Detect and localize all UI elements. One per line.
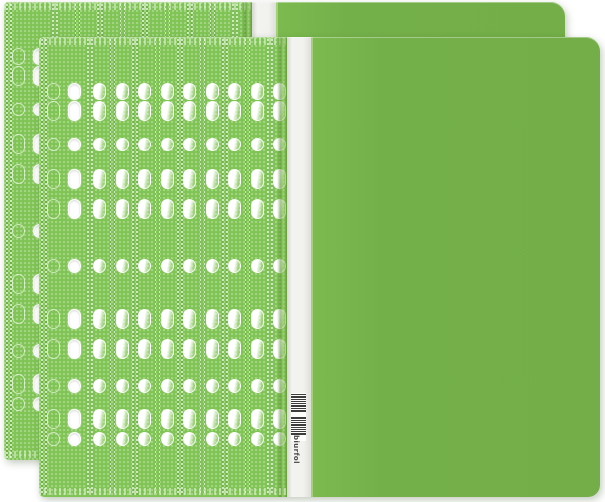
punch-hole-outline (12, 224, 25, 238)
binder-hole (68, 309, 81, 329)
barcode-bar (291, 424, 306, 426)
punch-hole (183, 259, 196, 273)
punch-hole (93, 169, 106, 189)
brand-logo: biurfol (292, 435, 299, 459)
punch-hole (228, 101, 241, 121)
barcode-bar (291, 417, 306, 419)
punch-hole-outline (47, 138, 60, 151)
punch-hole-outline (12, 164, 25, 184)
punch-hole (138, 339, 151, 359)
punch-hole (206, 259, 219, 273)
binder-hole (68, 83, 81, 100)
punch-hole-outline (47, 259, 60, 273)
binder-edge-column (39, 37, 85, 497)
punch-hole (183, 339, 196, 359)
binder-hole (68, 409, 81, 429)
punch-hole (93, 259, 106, 273)
punch-hole (251, 101, 264, 121)
punch-hole (183, 432, 196, 446)
punched-filing-strip (39, 37, 287, 497)
punch-column (153, 37, 176, 497)
barcode-bar (291, 427, 306, 428)
barcode-bar (291, 422, 306, 423)
punch-hole (93, 101, 106, 121)
punch-hole (161, 379, 174, 393)
punch-hole (206, 379, 219, 393)
punch-hole (116, 309, 129, 329)
punch-hole-outline (12, 134, 25, 154)
punch-hole-outline (12, 48, 25, 65)
binder-hole (68, 169, 81, 189)
punch-hole (93, 409, 106, 429)
binder-hole (68, 101, 81, 121)
punch-hole (183, 379, 196, 393)
punch-column (243, 37, 266, 497)
punch-hole (206, 138, 219, 151)
punch-hole (93, 138, 106, 151)
punch-hole (116, 432, 129, 446)
barcode-bar (291, 394, 306, 395)
punch-hole (251, 169, 264, 189)
punch-hole-outline (47, 309, 60, 329)
punch-hole (138, 309, 151, 329)
punch-hole-outline (47, 83, 60, 100)
punch-hole-outline (47, 432, 60, 446)
punch-hole-outline (47, 409, 60, 429)
front-cover (311, 37, 600, 497)
punch-hole (251, 432, 264, 446)
punch-hole (93, 432, 106, 446)
punch-hole (251, 199, 264, 219)
punch-hole (251, 309, 264, 329)
punch-column (85, 37, 108, 497)
barcode-bar (291, 403, 306, 404)
punch-hole-outline (12, 397, 25, 411)
punch-hole (161, 199, 174, 219)
binder-hole (68, 432, 81, 446)
punch-hole (161, 101, 174, 121)
punch-hole (138, 199, 151, 219)
barcode-bar (291, 399, 306, 400)
binder-hole (68, 199, 81, 219)
punch-hole (228, 138, 241, 151)
punch-hole-outline (47, 169, 60, 189)
punch-hole (206, 432, 219, 446)
barcode-bar (291, 420, 306, 421)
punch-hole (138, 259, 151, 273)
punch-hole (161, 409, 174, 429)
binder-hole (68, 138, 81, 151)
punch-hole-outline (12, 344, 25, 358)
punch-hole (138, 409, 151, 429)
punch-hole (206, 309, 219, 329)
barcode-group (291, 394, 306, 412)
punch-hole (93, 199, 106, 219)
punch-hole (251, 83, 264, 100)
punch-hole (228, 432, 241, 446)
barcode-bar (291, 429, 306, 430)
punch-hole-outline (12, 374, 25, 394)
binder-hole (68, 259, 81, 273)
barcode-bar (291, 405, 306, 407)
punch-hole (161, 309, 174, 329)
punch-hole (251, 409, 264, 429)
punch-hole (116, 138, 129, 151)
punch-hole (228, 379, 241, 393)
punch-hole-outline (12, 304, 25, 324)
punch-hole (93, 83, 106, 100)
spine-fold-shadow (277, 37, 287, 497)
punch-hole (161, 83, 174, 100)
punch-hole (251, 339, 264, 359)
punch-hole (183, 199, 196, 219)
punch-column (108, 37, 131, 497)
punch-hole (228, 309, 241, 329)
punch-hole (138, 169, 151, 189)
punch-hole (228, 83, 241, 100)
punch-hole (116, 379, 129, 393)
punch-column (198, 37, 221, 497)
punch-hole (161, 259, 174, 273)
punch-hole (228, 259, 241, 273)
binder-hole (68, 379, 81, 393)
punch-hole (206, 83, 219, 100)
punch-hole (251, 138, 264, 151)
punch-hole (228, 199, 241, 219)
punch-hole (116, 83, 129, 100)
punch-hole (161, 138, 174, 151)
punch-hole (228, 169, 241, 189)
barcode-group (291, 417, 306, 435)
punch-hole-outline (47, 101, 60, 121)
binder-hole (68, 339, 81, 359)
punch-hole (116, 259, 129, 273)
barcode-bar (291, 410, 306, 412)
punch-hole-outline (47, 339, 60, 359)
punch-hole (138, 379, 151, 393)
punch-hole-outline (12, 66, 25, 86)
punch-hole (116, 169, 129, 189)
barcode-bar (291, 431, 306, 432)
front-folder: biurfol (39, 37, 600, 497)
punch-hole (116, 339, 129, 359)
punch-hole (116, 101, 129, 121)
barcode-bar (291, 401, 306, 402)
punch-hole (183, 409, 196, 429)
punch-hole (93, 379, 106, 393)
punch-hole (116, 199, 129, 219)
punch-hole (138, 432, 151, 446)
punch-hole (206, 101, 219, 121)
punch-column (220, 37, 243, 497)
barcode-bar (291, 408, 306, 409)
punch-hole (183, 169, 196, 189)
punch-hole (138, 101, 151, 121)
punch-hole (183, 309, 196, 329)
punch-hole (161, 169, 174, 189)
punch-hole (251, 259, 264, 273)
spine-strip: biurfol (287, 37, 311, 497)
scene: biurfol (0, 0, 605, 502)
punch-hole (206, 339, 219, 359)
punch-column (175, 37, 198, 497)
punch-hole (93, 309, 106, 329)
punch-column (130, 37, 153, 497)
punch-hole (161, 432, 174, 446)
punch-hole (161, 339, 174, 359)
punch-hole (138, 138, 151, 151)
punch-hole-outline (12, 274, 25, 294)
punch-hole-outline (12, 103, 25, 116)
punch-hole (183, 138, 196, 151)
barcode-bar (291, 396, 306, 398)
punch-hole (138, 83, 151, 100)
punch-hole (206, 169, 219, 189)
punch-hole (93, 339, 106, 359)
barcode (291, 393, 306, 441)
punch-hole (183, 101, 196, 121)
punch-hole-outline (47, 199, 60, 219)
punch-hole (228, 409, 241, 429)
punch-hole (183, 83, 196, 100)
punch-hole (206, 199, 219, 219)
punch-hole (228, 339, 241, 359)
punch-hole (251, 379, 264, 393)
punch-hole (206, 409, 219, 429)
punch-hole-outline (47, 379, 60, 393)
punch-hole (116, 409, 129, 429)
